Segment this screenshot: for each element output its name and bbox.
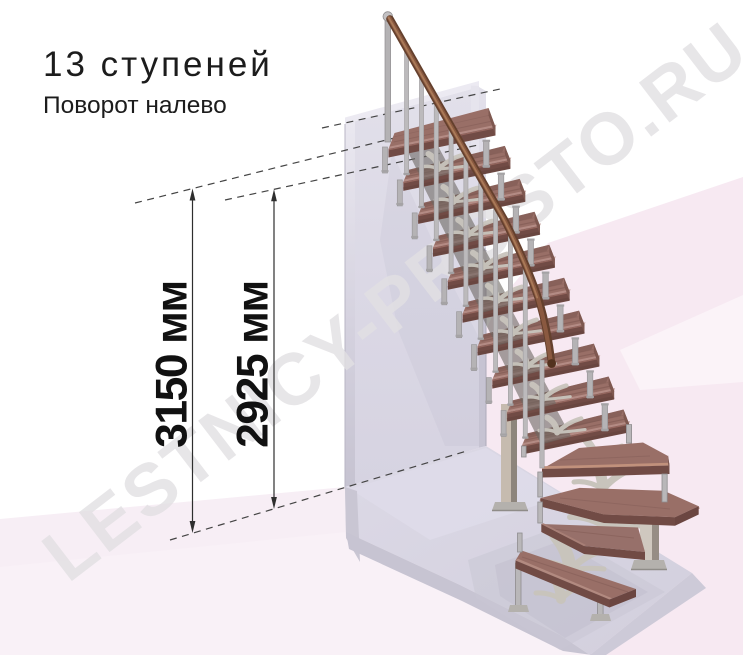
svg-text:13 ступеней: 13 ступеней <box>43 45 273 84</box>
svg-text:Поворот налево: Поворот налево <box>43 92 227 119</box>
svg-text:3150 мм: 3150 мм <box>148 281 197 448</box>
svg-text:2925 мм: 2925 мм <box>229 281 278 448</box>
